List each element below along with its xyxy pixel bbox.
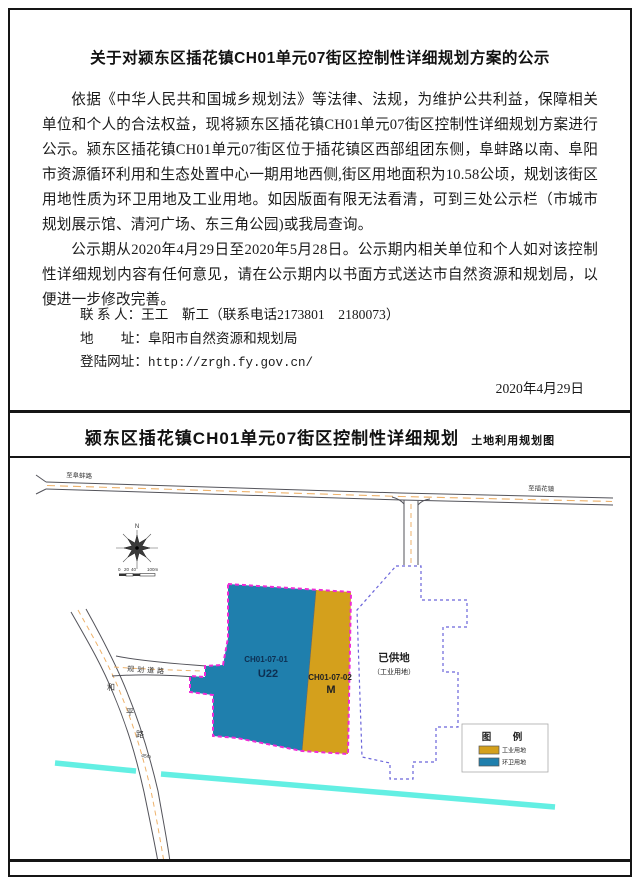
- sanitation-parcel: [190, 584, 316, 751]
- legend-title: 图 例: [482, 731, 529, 743]
- heping-road: [71, 609, 170, 859]
- parcel2-code-label: CH01-07-02: [308, 673, 352, 682]
- notice-paragraph-1: 依据《中华人民共和国城乡规划法》等法律、法规，为维护公共利益，保障相关单位和个人…: [42, 88, 598, 238]
- contact-person-label: 联 系 人：: [80, 307, 141, 322]
- map-titlebar: 颍东区插花镇CH01单元07街区控制性详细规划 土地利用规划图: [10, 414, 630, 456]
- top-road: [36, 475, 613, 505]
- river-west-segment: [55, 763, 136, 771]
- scale-tick-40: 40: [131, 567, 137, 572]
- parcel1-code-label: CH01-07-01: [244, 655, 288, 664]
- map-legend: 图 例 工业用地 环卫用地: [462, 724, 548, 772]
- public-notice-page: 关于对颍东区插花镇CH01单元07街区控制性详细规划方案的公示 依据《中华人民共…: [0, 0, 640, 885]
- top-road-west-label: 至阜蚌路: [66, 470, 93, 480]
- notice-body: 依据《中华人民共和国城乡规划法》等法律、法规，为维护公共利益，保障相关单位和个人…: [42, 88, 598, 313]
- supplied-land-label: 已供地: [378, 651, 410, 664]
- contact-block: 联 系 人：王工 靳工（联系电话2173801 2180073） 地 址：阜阳市…: [80, 303, 399, 376]
- notice-title: 关于对颍东区插花镇CH01单元07街区控制性详细规划方案的公示: [20, 46, 620, 68]
- contact-address-label: 地 址：: [80, 331, 148, 346]
- top-road-east-label: 至插花镇: [528, 483, 555, 493]
- map-top-rule: [8, 410, 632, 413]
- parcel2-use-label: M: [326, 684, 335, 696]
- contact-person-value: 王工 靳工（联系电话2173801 2180073）: [141, 307, 399, 322]
- scale-tick-20: 20: [124, 567, 130, 572]
- scale-bar: 0 20 40 100m: [118, 567, 159, 576]
- contact-address-value: 阜阳市自然资源和规划局: [148, 331, 298, 346]
- map-mid-rule: [8, 456, 632, 458]
- legend-swatch-industrial: [479, 746, 499, 754]
- road-width-dimension: 45m: [141, 753, 151, 760]
- supplied-land-sublabel: （工业用地）: [373, 667, 415, 676]
- river-east-segment: [161, 774, 555, 807]
- heping-road-char-2: 平: [126, 708, 134, 717]
- junction-road: [392, 497, 430, 565]
- land-use-map: CH01-07-01 U22 CH01-07-02 M 已供地 （工业用地） 至…: [9, 459, 631, 859]
- compass-rose-icon: N: [116, 524, 158, 569]
- contact-address-row: 地 址：阜阳市自然资源和规划局: [80, 327, 399, 351]
- scale-tick-0: 0: [118, 567, 121, 572]
- notice-date: 2020年4月29日: [496, 377, 584, 397]
- map-bottom-rule: [8, 859, 632, 862]
- legend-swatch-sanitation: [479, 758, 499, 766]
- planned-road-label: 规划道路: [127, 664, 168, 676]
- heping-road-char-3: 路: [136, 729, 144, 739]
- heping-road-char-1: 和: [107, 683, 115, 692]
- map-subtitle: 土地利用规划图: [471, 432, 555, 448]
- website-url: http://zrgh.fy.gov.cn/: [148, 356, 313, 370]
- notice-paragraph-2: 公示期从2020年4月29日至2020年5月28日。公示期内相关单位和个人如对该…: [42, 238, 598, 313]
- map-title: 颍东区插花镇CH01单元07街区控制性详细规划: [85, 424, 459, 449]
- legend-label-industrial: 工业用地: [502, 747, 526, 755]
- contact-person-row: 联 系 人：王工 靳工（联系电话2173801 2180073）: [80, 303, 399, 327]
- scale-tick-100: 100m: [147, 567, 159, 572]
- legend-label-sanitation: 环卫用地: [502, 759, 526, 767]
- contact-website-label: 登陆网址：: [80, 354, 148, 369]
- contact-website-row: 登陆网址：http://zrgh.fy.gov.cn/: [80, 350, 399, 376]
- parcel1-use-label: U22: [258, 668, 278, 680]
- compass-north-label: N: [135, 524, 139, 530]
